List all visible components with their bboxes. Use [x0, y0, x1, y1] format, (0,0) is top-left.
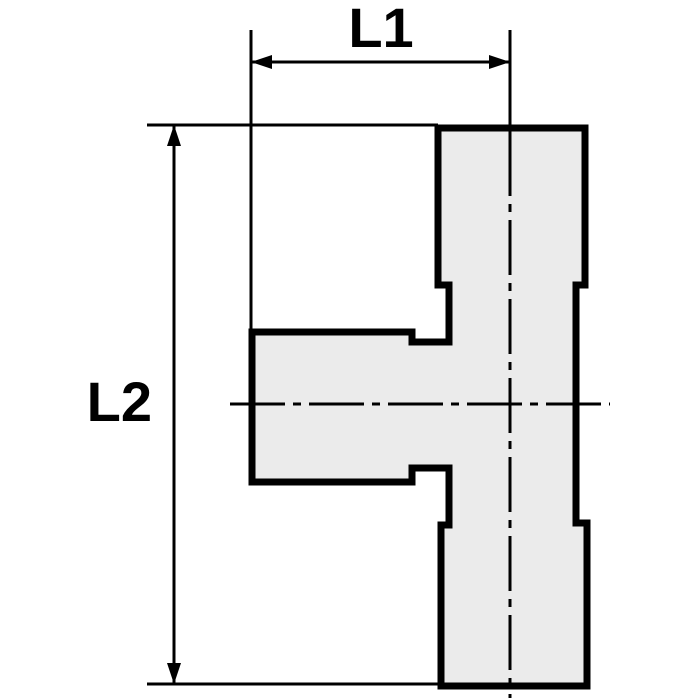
l2-arrowhead-bottom: [167, 663, 181, 684]
l2-dimension-label: L2: [87, 370, 152, 433]
l1-dimension-label: L1: [348, 0, 413, 59]
technical-drawing-canvas: L1 L2: [0, 0, 700, 700]
l2-arrowhead-top: [167, 125, 181, 146]
l1-arrowhead-left: [251, 55, 272, 69]
tee-fitting-drawing: L1 L2: [0, 0, 700, 700]
fitting-outline: [252, 128, 587, 686]
l1-arrowhead-right: [489, 55, 510, 69]
